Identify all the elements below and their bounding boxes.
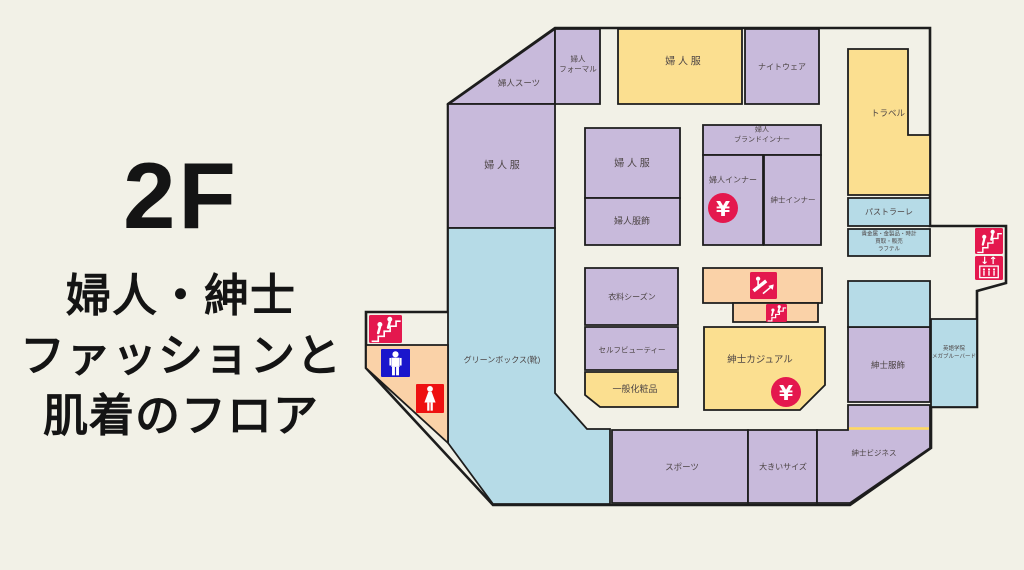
yen-icon-shinshi-casual: ¥ [771, 377, 801, 407]
room-fujin-suit [449, 29, 555, 104]
elevator-icon: ↓↑ [975, 256, 1003, 280]
stairs-icon-east [975, 228, 1003, 254]
stairs-icon-center [766, 304, 787, 322]
mens-room-icon [381, 349, 410, 377]
room-label-self-beauty: セルフビューティー [598, 346, 665, 355]
floor-map: 婦人スーツ婦人フォーマル婦 人 服ナイトウェアトラベル婦 人 服婦 人 服婦人服… [0, 0, 1024, 570]
room-label-shinshi-casual: 紳士カジュアル [727, 354, 793, 366]
svg-text:↓↑: ↓↑ [981, 256, 998, 267]
room-label-sports: スポーツ [665, 462, 699, 472]
yen-icon-fujin-inner: ¥ [708, 193, 738, 223]
room-label-shinshi-business: 紳士ビジネス [852, 448, 897, 458]
stairs-icon-west [369, 315, 402, 343]
room-label-travel: トラベル [871, 108, 906, 118]
room-megabluebird [931, 319, 977, 407]
room-label-shinshi-fukushoku: 紳士服飾 [871, 360, 905, 370]
room-shinshi-casual [704, 327, 825, 410]
svg-text:¥: ¥ [716, 197, 730, 221]
room-label-pastorale: パストラーレ [865, 208, 913, 217]
escalator-icon [750, 272, 777, 299]
room-label-shinshi-inner: 紳士インナー [771, 195, 816, 205]
room-tenant-blue [848, 281, 930, 327]
womens-room-icon [416, 384, 444, 413]
room-label-iryo-season: 衣料シーズン [608, 292, 656, 302]
room-label-greenbox: グリーンボックス(靴) [464, 355, 541, 365]
svg-text:¥: ¥ [779, 381, 793, 405]
room-label-fujin-fuku-west: 婦 人 服 [484, 160, 520, 172]
room-label-fujin-inner: 婦人インナー [709, 175, 757, 185]
room-label-nightwear: ナイトウェア [758, 63, 806, 72]
room-label-ippan-keshohin: 一般化粧品 [612, 383, 657, 394]
room-label-fujin-fuku-center: 婦 人 服 [614, 158, 650, 170]
room-label-large-size: 大きいサイズ [759, 462, 807, 472]
room-label-fujin-fuku-north: 婦 人 服 [665, 56, 701, 68]
room-label-fujin-suit: 婦人スーツ [498, 78, 540, 88]
room-label-fujin-fukushoku: 婦人服飾 [614, 215, 650, 226]
